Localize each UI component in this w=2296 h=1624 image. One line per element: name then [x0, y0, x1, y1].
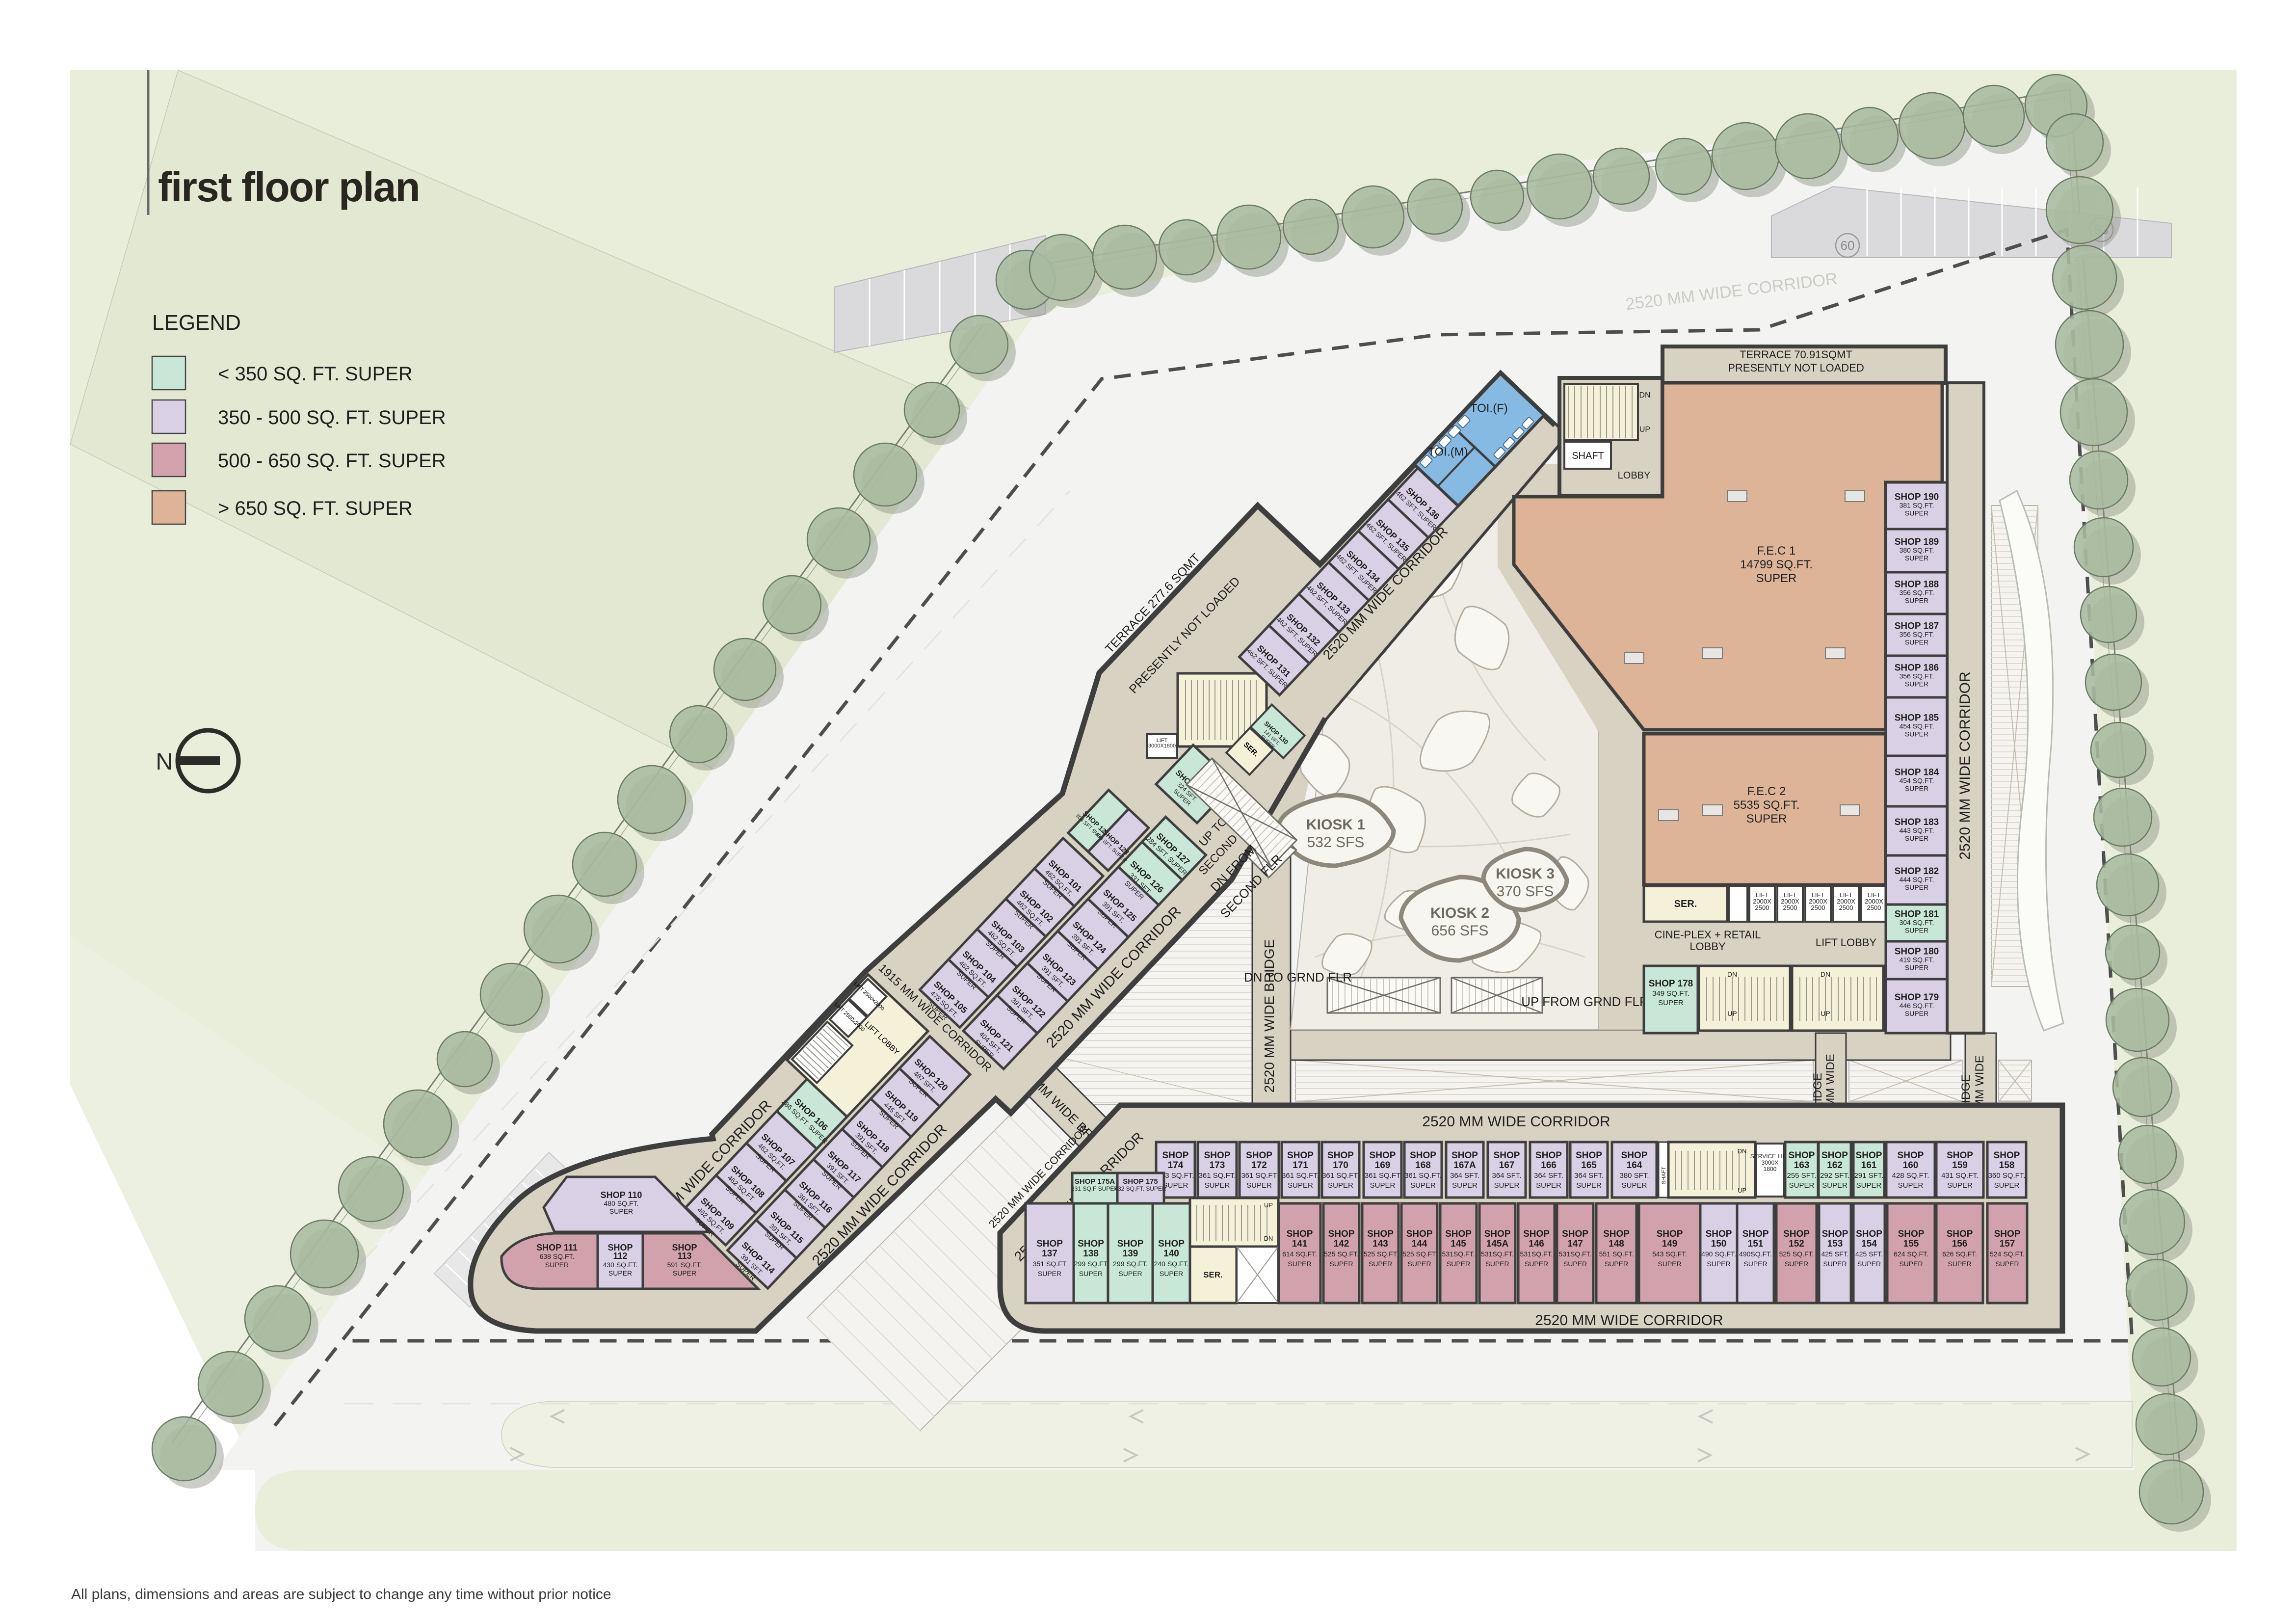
svg-text:SHOP167A364 SFT.SUPER: SHOP167A364 SFT.SUPER: [1450, 1150, 1479, 1190]
svg-text:TOI.(M): TOI.(M): [1427, 445, 1468, 458]
svg-text:> 650 SQ. FT. SUPER: > 650 SQ. FT. SUPER: [218, 498, 413, 519]
svg-text:60: 60: [1841, 238, 1855, 253]
svg-text:SHAFT: SHAFT: [1661, 1167, 1667, 1184]
svg-text:SHAFT: SHAFT: [1572, 451, 1604, 461]
svg-text:UP: UP: [1821, 1010, 1830, 1017]
svg-text:UP: UP: [1639, 426, 1650, 434]
svg-text:< 350 SQ. FT. SUPER: < 350 SQ. FT. SUPER: [218, 363, 413, 385]
svg-text:N: N: [156, 749, 173, 775]
svg-text:TOI.(F): TOI.(F): [1470, 402, 1508, 415]
svg-text:DN TO GRND FLR: DN TO GRND FLR: [1244, 970, 1352, 985]
svg-text:first floor plan: first floor plan: [158, 164, 420, 210]
svg-text:2520 MM WIDE CORRIDOR: 2520 MM WIDE CORRIDOR: [1535, 1312, 1723, 1329]
svg-text:DN: DN: [1264, 1235, 1273, 1242]
svg-text:TERRACE 70.91SQMT: TERRACE 70.91SQMT: [1740, 348, 1852, 361]
svg-text:DN: DN: [1639, 391, 1650, 399]
svg-text:UP: UP: [1738, 1187, 1746, 1194]
svg-text:LOBBY: LOBBY: [1618, 470, 1651, 481]
svg-text:2520 MM WIDE BRIDGE: 2520 MM WIDE BRIDGE: [1262, 939, 1277, 1093]
svg-text:2520 MM WIDE CORRIDOR: 2520 MM WIDE CORRIDOR: [1957, 671, 1973, 859]
svg-text:350 - 500 SQ. FT. SUPER: 350 - 500 SQ. FT. SUPER: [218, 407, 446, 428]
svg-text:SER.: SER.: [1674, 899, 1697, 909]
svg-text:LEGEND: LEGEND: [152, 311, 241, 335]
svg-text:2520 MM WIDE CORRIDOR: 2520 MM WIDE CORRIDOR: [1422, 1114, 1610, 1130]
svg-text:500 - 650 SQ. FT. SUPER: 500 - 650 SQ. FT. SUPER: [218, 450, 446, 472]
svg-text:UP: UP: [1264, 1201, 1273, 1209]
svg-text:DN: DN: [1738, 1147, 1747, 1155]
svg-text:DN: DN: [1727, 970, 1737, 978]
svg-text:SHOP 175A231 SQ.F SUPER: SHOP 175A231 SQ.F SUPER: [1071, 1177, 1118, 1192]
svg-text:All plans, dimensions and area: All plans, dimensions and areas are subj…: [71, 1586, 611, 1602]
svg-text:UP FROM GRND FLR: UP FROM GRND FLR: [1521, 994, 1649, 1009]
svg-text:DN: DN: [1821, 970, 1830, 978]
svg-text:UP: UP: [1727, 1010, 1737, 1017]
svg-text:LIFT LOBBY: LIFT LOBBY: [1816, 936, 1877, 949]
svg-text:SER.: SER.: [1203, 1270, 1223, 1279]
svg-text:PRESENTLY NOT LOADED: PRESENTLY NOT LOADED: [1728, 362, 1864, 374]
